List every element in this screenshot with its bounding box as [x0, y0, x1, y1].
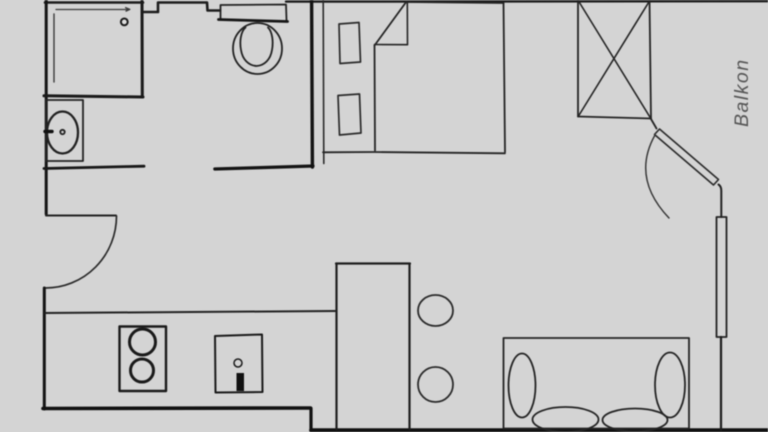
svg-text:Balkon: Balkon [731, 58, 753, 127]
